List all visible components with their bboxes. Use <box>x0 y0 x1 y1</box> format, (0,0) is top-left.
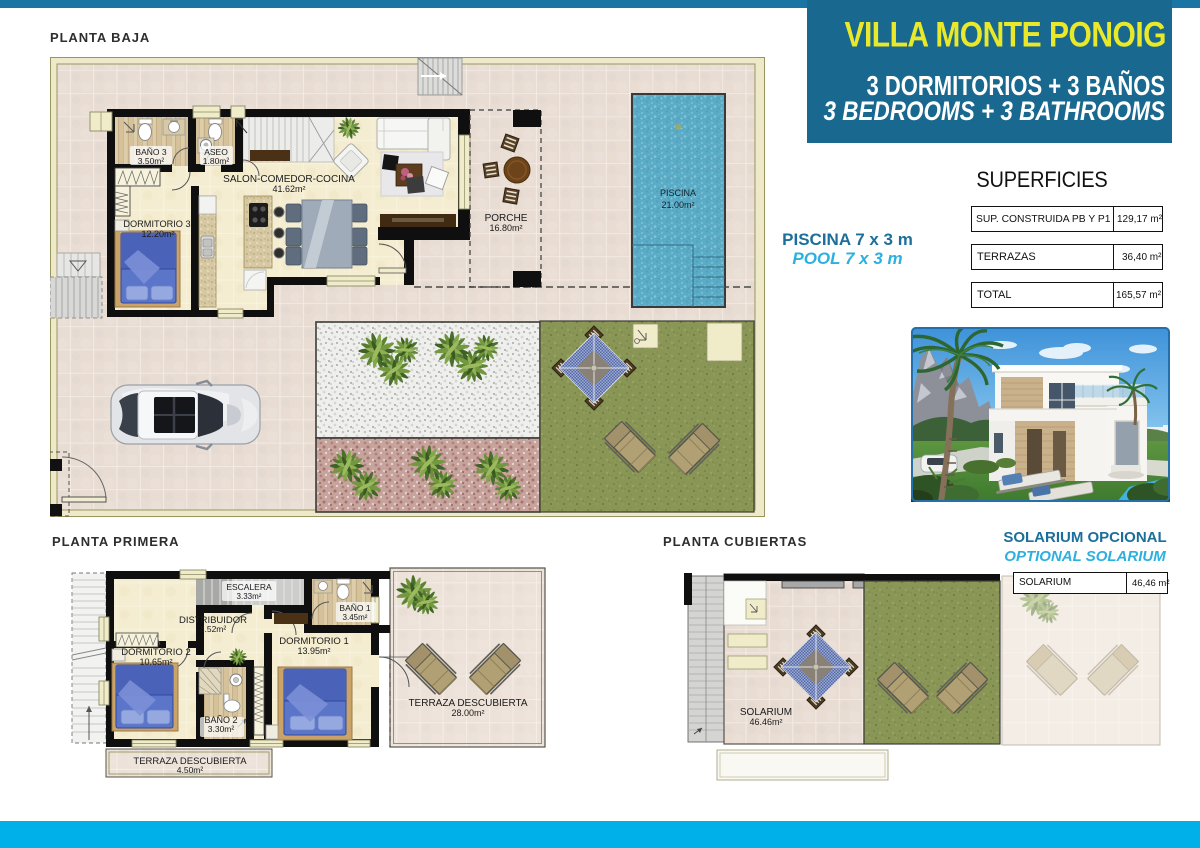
svg-text:PISCINA: PISCINA <box>660 188 696 198</box>
svg-text:16.80m²: 16.80m² <box>489 223 522 233</box>
svg-text:4.50m²: 4.50m² <box>177 765 204 775</box>
svg-text:ESCALERA: ESCALERA <box>226 582 272 592</box>
svg-text:10.65m²: 10.65m² <box>139 657 172 667</box>
svg-text:41.62m²: 41.62m² <box>272 184 305 194</box>
svg-text:21.00m²: 21.00m² <box>661 200 694 210</box>
svg-text:3.52m²: 3.52m² <box>200 624 227 634</box>
svg-text:3.45m²: 3.45m² <box>343 613 368 622</box>
svg-text:28.00m²: 28.00m² <box>451 708 484 718</box>
svg-text:12.20m²: 12.20m² <box>141 229 174 239</box>
svg-text:DORMITORIO 3: DORMITORIO 3 <box>123 219 190 229</box>
svg-text:46.46m²: 46.46m² <box>749 717 782 727</box>
svg-text:3.33m²: 3.33m² <box>237 592 262 601</box>
svg-text:BAÑO 1: BAÑO 1 <box>339 603 370 613</box>
svg-text:3.50m²: 3.50m² <box>138 156 165 166</box>
svg-text:1.80m²: 1.80m² <box>203 156 230 166</box>
svg-text:3.30m²: 3.30m² <box>208 724 235 734</box>
svg-text:13.95m²: 13.95m² <box>297 646 330 656</box>
